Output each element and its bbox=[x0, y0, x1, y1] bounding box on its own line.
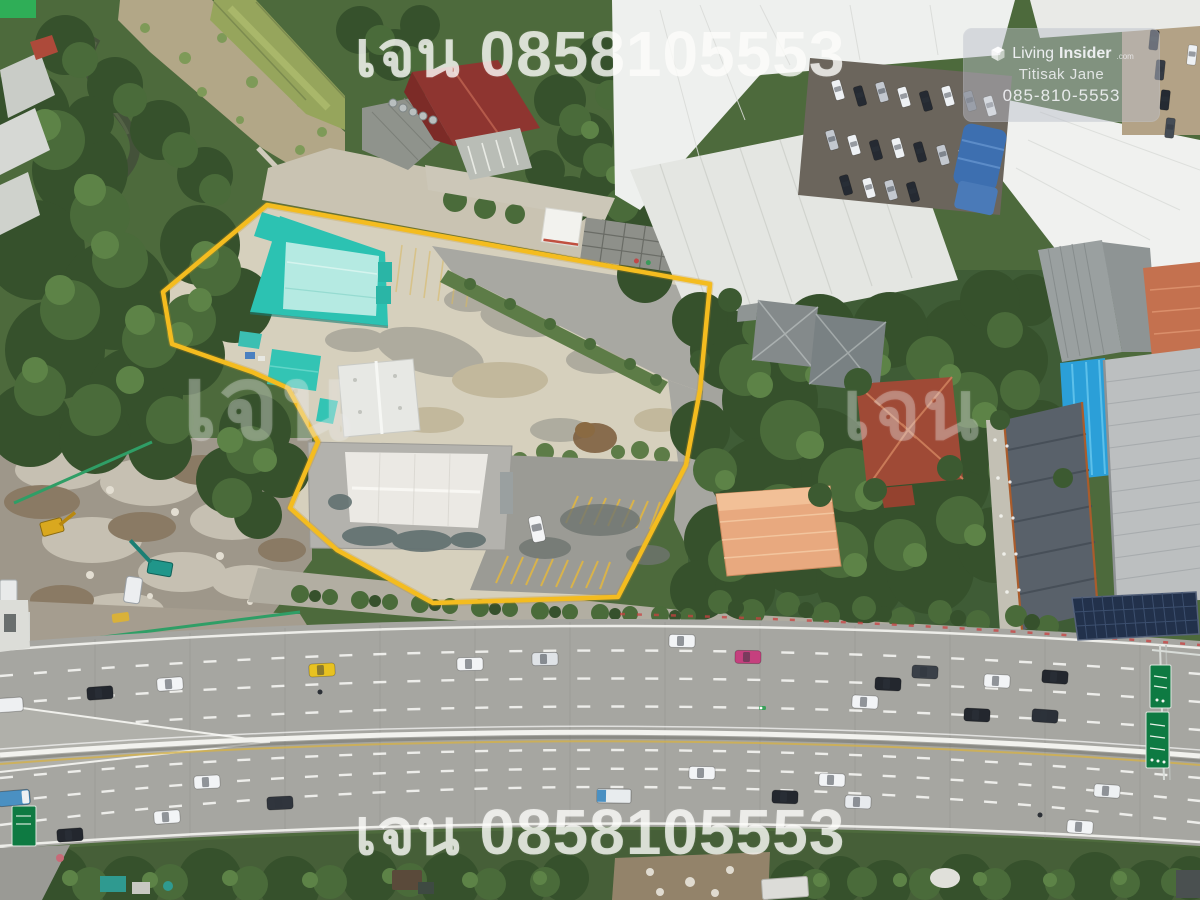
aerial-scene bbox=[0, 0, 1200, 900]
watermark-middle-left: เจน bbox=[182, 352, 353, 456]
brand-tld: .com bbox=[1116, 52, 1133, 61]
dark-building bbox=[1176, 870, 1200, 898]
motorcycle bbox=[759, 706, 766, 710]
gray-warehouse bbox=[1104, 348, 1200, 604]
watermark-top: เจน 0858105553 bbox=[355, 22, 846, 86]
white-shed bbox=[761, 876, 808, 899]
watermark-bottom: เจน 0858105553 bbox=[355, 800, 846, 864]
white-van bbox=[123, 576, 142, 604]
orange-tile-roof bbox=[1143, 262, 1200, 360]
yellow-taxi bbox=[309, 663, 336, 677]
aerial-property-photo: เจน 0858105553 เจน เจน เจน 0858105553 Li… bbox=[0, 0, 1200, 900]
watermark-middle-right: เจน bbox=[842, 368, 980, 452]
agent-name: Titisak Jane bbox=[1019, 66, 1104, 83]
brand-living: Living bbox=[1012, 45, 1054, 63]
pink-taxi bbox=[735, 650, 761, 663]
stair-block bbox=[500, 472, 513, 514]
teal-shack bbox=[100, 876, 126, 892]
agent-phone: 085-810-5553 bbox=[1003, 86, 1121, 106]
agent-badge: LivingInsider.com Titisak Jane 085-810-5… bbox=[963, 28, 1160, 122]
brand-insider: Insider bbox=[1059, 45, 1111, 63]
living-insider-logo-icon bbox=[989, 45, 1007, 63]
brown-roof bbox=[392, 870, 422, 890]
solar-roof bbox=[1072, 592, 1199, 640]
scaffold-building bbox=[1004, 402, 1098, 630]
